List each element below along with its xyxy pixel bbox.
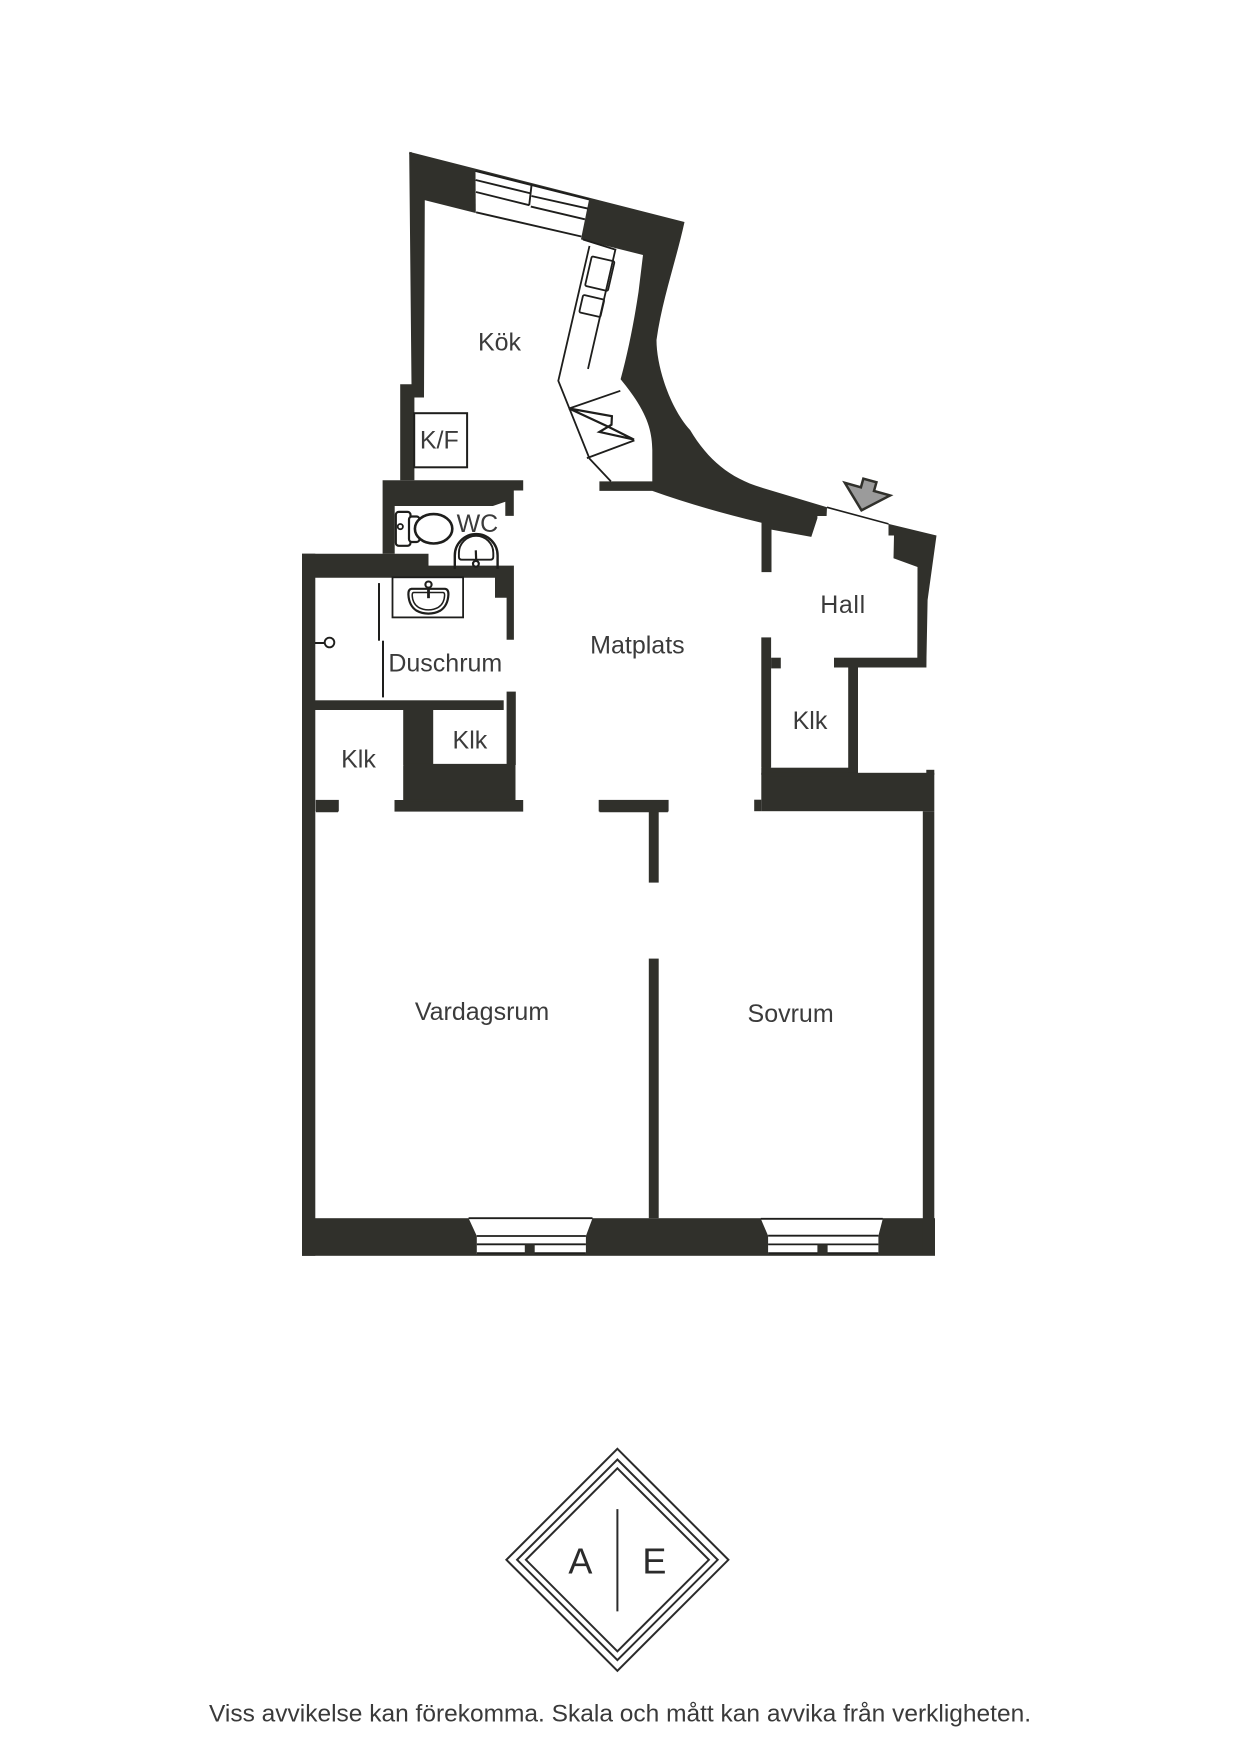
svg-text:Matplats: Matplats <box>590 632 684 660</box>
svg-text:Hall: Hall <box>820 591 865 619</box>
svg-text:E: E <box>642 1541 666 1582</box>
svg-text:Kök: Kök <box>478 329 522 357</box>
svg-text:Klk: Klk <box>341 746 376 774</box>
svg-text:K/F: K/F <box>420 427 459 455</box>
svg-text:Duschrum: Duschrum <box>388 650 502 678</box>
svg-text:Vardagsrum: Vardagsrum <box>415 998 549 1026</box>
svg-text:Klk: Klk <box>453 727 488 755</box>
svg-text:Viss avvikelse kan förekomma.: Viss avvikelse kan förekomma. Skala och … <box>209 1701 1031 1728</box>
svg-text:WC: WC <box>457 510 499 538</box>
svg-text:Sovrum: Sovrum <box>748 1000 834 1028</box>
svg-text:A: A <box>568 1541 592 1582</box>
svg-text:Klk: Klk <box>793 707 828 735</box>
